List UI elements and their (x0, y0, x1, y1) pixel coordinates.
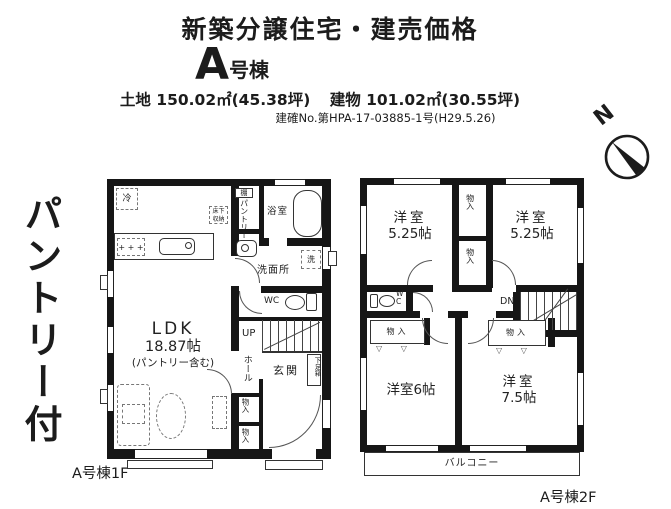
door-arc (492, 260, 516, 285)
wall (231, 286, 239, 351)
storage-box: 物入 (370, 320, 425, 344)
entrance-door-arc (269, 395, 321, 448)
window (107, 385, 114, 411)
building-name: A 号棟 (195, 44, 269, 86)
door-arc (407, 260, 432, 285)
window (322, 400, 331, 428)
bathtub-icon (293, 190, 322, 237)
room-label-se: 洋室 7.5帖 (479, 374, 559, 406)
toilet-tank-icon (306, 293, 317, 311)
closet-door-marks: ▽ ▽ (496, 346, 535, 356)
wall (455, 318, 462, 445)
wall (231, 393, 239, 449)
room-label-hall: ホール (241, 355, 252, 382)
pantry-note: パントリー付 (13, 194, 68, 446)
storage-label: 物入 (241, 428, 250, 443)
stairs-down-label: DN (500, 296, 514, 307)
wall (261, 286, 322, 293)
room-label-pantry: パントリー (239, 199, 249, 239)
stair-edge-line (262, 351, 322, 353)
ldk-size: 18.87帖 (119, 339, 227, 356)
shutter-box (328, 251, 337, 266)
room-label-bathroom: 浴室 (267, 206, 288, 217)
area-figures: 土地 150.02㎡(45.38坪) 建物 101.02㎡(30.55坪) (0, 88, 640, 110)
wall (448, 311, 468, 318)
ldk-note: (パントリー含む) (119, 357, 227, 370)
wall (367, 311, 420, 318)
tv-board-icon (212, 396, 227, 429)
door-arc (413, 292, 433, 312)
window (577, 373, 584, 425)
window (506, 178, 550, 185)
toilet-tank-icon (370, 294, 378, 308)
balcony-label: バルコニー (432, 458, 512, 470)
shutter-box (100, 275, 108, 290)
porch (265, 460, 323, 470)
stove-icon: + + + (117, 238, 145, 256)
closet-door-marks: ▽ ▽ (376, 344, 415, 354)
storage-label: 物入 (465, 194, 475, 210)
room-se-name: 洋室 (479, 374, 559, 390)
washer-box: 洗 (301, 250, 321, 269)
room-label-ldk: LDK 18.87帖 (パントリー含む) (119, 319, 227, 369)
building-suffix: 号棟 (229, 54, 269, 86)
room-label-wc: WC (264, 296, 279, 307)
underfloor-storage-box: 床下収納 (209, 206, 228, 224)
window (275, 179, 305, 186)
washbasin-bowl-icon (241, 244, 249, 252)
pantry-shelf: 棚 (235, 188, 253, 198)
refrigerator-box: 冷 (116, 188, 138, 210)
floor-plan-1f: + + + 冷 床下収納 棚 パントリー 浴室 洗面所 洗 WC UP ホール … (107, 179, 331, 459)
shoe-box: 下足箱 (307, 354, 321, 386)
room-label-ne: 洋室 5.25帖 (492, 210, 572, 242)
window (470, 445, 526, 452)
terrace-step (127, 460, 213, 469)
wall (406, 292, 413, 311)
door-arc (207, 369, 232, 394)
room-label-wc: WC (396, 290, 405, 306)
entrance-opening (272, 449, 316, 459)
window (394, 178, 440, 185)
door-arc (235, 258, 260, 283)
table-icon (156, 393, 186, 439)
stairs-up-label: UP (242, 328, 255, 340)
wall (259, 379, 263, 449)
floor-plan-2f: バルコニー 洋室 5.25帖 洋室 5.25帖 物入 物入 WC DN 物入 ▽… (360, 178, 584, 480)
sofa-cushion (122, 404, 145, 424)
window (577, 208, 584, 263)
storage-box: 物入 (488, 320, 546, 346)
page-title: 新築分譲住宅・建売価格 (0, 10, 660, 46)
shutter-box (100, 389, 108, 404)
wall (235, 422, 263, 426)
room-label-nw: 洋室 5.25帖 (370, 210, 450, 242)
window (107, 271, 114, 297)
wall (459, 236, 486, 241)
room-se-size: 7.5帖 (479, 390, 559, 406)
wall (452, 185, 459, 288)
window (360, 206, 367, 254)
door-arc (239, 291, 262, 314)
window (386, 445, 438, 452)
building-letter: A (195, 44, 229, 86)
caption-1f: A号棟1F (72, 462, 129, 483)
room-ne-size: 5.25帖 (492, 226, 572, 242)
land-area: 土地 150.02㎡(45.38坪) (120, 91, 310, 109)
window (360, 358, 367, 410)
toilet-icon (379, 295, 395, 307)
north-label: N (589, 100, 619, 131)
room-label-entrance: 玄関 (273, 364, 299, 377)
storage-label: 物入 (241, 398, 250, 413)
faucet-icon (185, 242, 192, 249)
building-area: 建物 101.02㎡(30.55坪) (330, 91, 520, 109)
wall (452, 285, 492, 292)
room-nw-name: 洋室 (370, 210, 450, 226)
ldk-name: LDK (119, 319, 227, 339)
room-nw-size: 5.25帖 (370, 226, 450, 242)
window (107, 327, 114, 353)
room-ne-name: 洋室 (492, 210, 572, 226)
wall (259, 238, 269, 246)
flyer-canvas: 新築分譲住宅・建売価格 A 号棟 土地 150.02㎡(45.38坪) 建物 1… (0, 0, 671, 509)
storage-label: 物入 (465, 248, 475, 264)
wall (107, 179, 114, 459)
north-compass-icon: N (586, 98, 664, 184)
window (135, 449, 207, 459)
wall (287, 238, 331, 246)
toilet-icon (285, 295, 305, 310)
caption-2f: A号棟2F (540, 486, 597, 507)
room-label-sw: 洋室6帖 (371, 382, 451, 398)
wall (235, 393, 263, 397)
room-label-washroom: 洗面所 (257, 265, 290, 277)
